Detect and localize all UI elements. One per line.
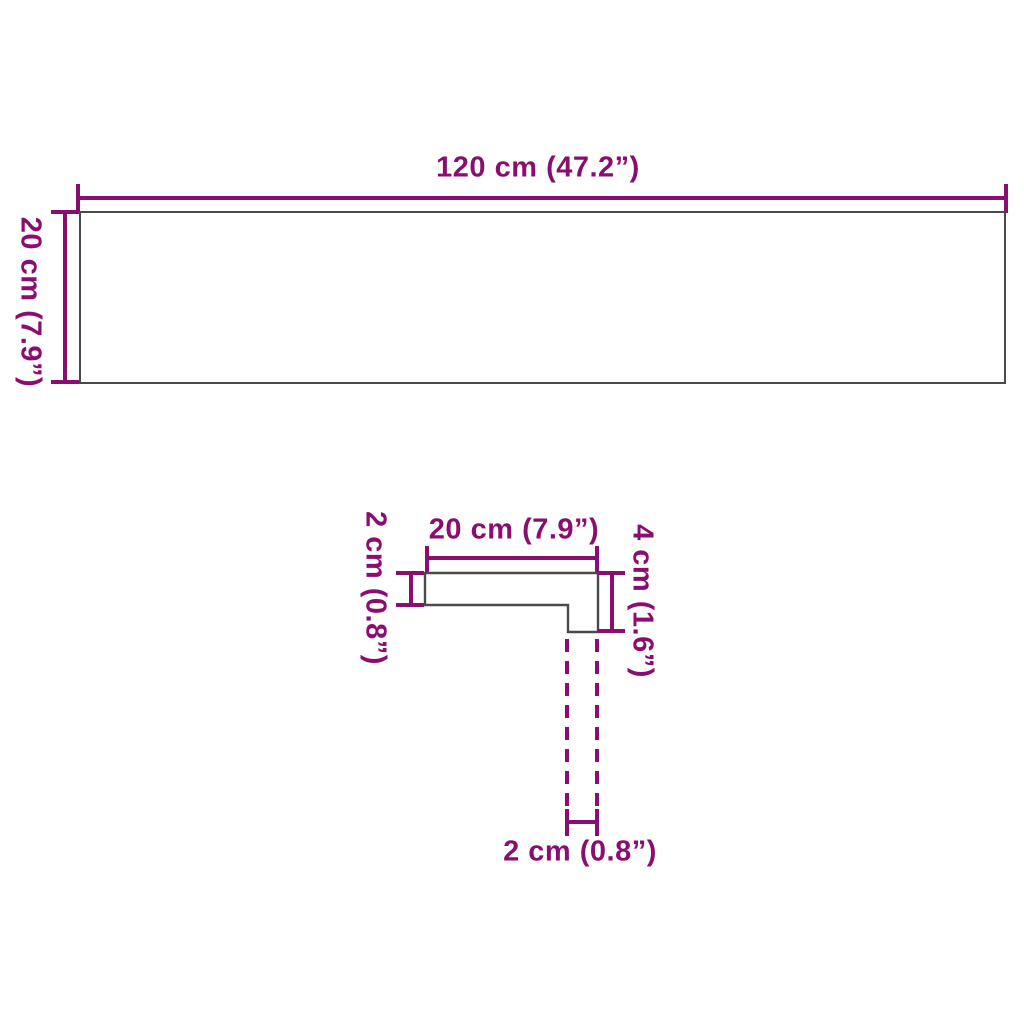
profile-outline (423, 571, 601, 635)
profile-thickness-bottom-tick (396, 603, 424, 607)
profile-width-dimension-line (427, 556, 595, 560)
profile-width-label: 20 cm (7.9”) (429, 516, 599, 545)
top-view-height-label: 20 cm (7.9”) (16, 217, 45, 387)
height-dimension-bottom-tick (51, 380, 79, 384)
profile-width-right-tick (595, 546, 599, 572)
width-dimension-line (80, 196, 1004, 200)
profile-height-label: 4 cm (1.6”) (628, 524, 657, 678)
profile-thickness-label: 2 cm (0.8”) (361, 511, 390, 665)
lip-width-left-tick (565, 809, 569, 836)
profile-thickness-top-tick (396, 571, 424, 575)
lip-width-label: 2 cm (0.8”) (503, 838, 657, 867)
profile-height-bottom-tick (598, 629, 625, 633)
width-dimension-right-tick (1004, 184, 1008, 213)
lip-extension-line-left (565, 639, 569, 815)
profile-width-left-tick (425, 546, 429, 572)
lip-width-right-tick (595, 809, 599, 836)
profile-height-line (610, 573, 614, 631)
width-dimension-left-tick (76, 184, 80, 213)
lip-extension-line-right (595, 639, 599, 815)
height-dimension-line (63, 212, 67, 384)
profile-outline-shape (425, 573, 598, 632)
profile-height-top-tick (598, 571, 625, 575)
lip-width-dimension-line (565, 820, 599, 824)
height-dimension-top-tick (51, 210, 79, 214)
top-view-width-label: 120 cm (47.2”) (436, 154, 640, 183)
dimension-diagram-canvas: 120 cm (47.2”) 20 cm (7.9”) 20 cm (7.9”)… (0, 0, 1024, 1024)
panel-outline (79, 211, 1006, 384)
profile-thickness-line (409, 573, 413, 605)
